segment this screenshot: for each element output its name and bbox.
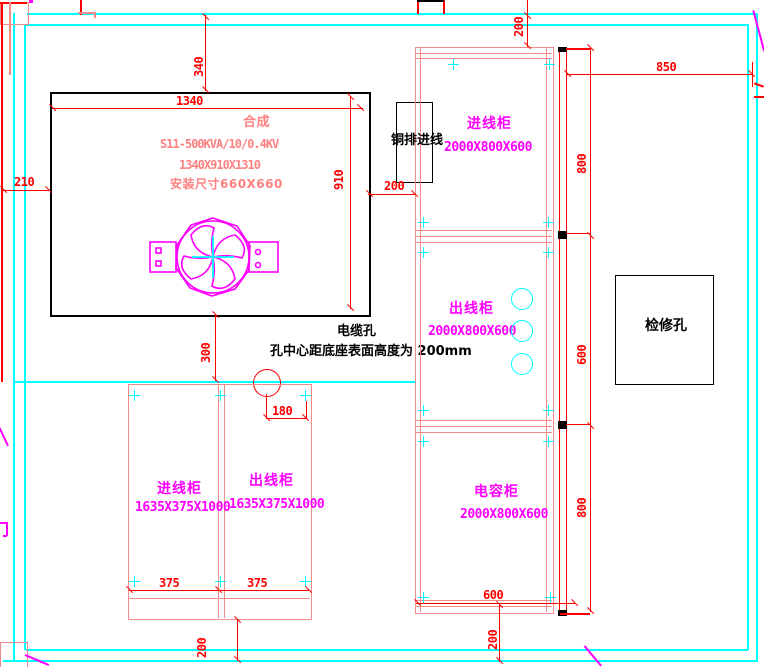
dim-line-200-top	[527, 0, 528, 47]
dim-ext	[566, 424, 590, 425]
transformer-model: S11-500KVA/10/0.4KV	[160, 138, 278, 151]
frame-outer-right	[756, 13, 758, 661]
cabinet-inlet-label: 进线柜	[467, 117, 512, 132]
cable-hole-label: 电缆孔	[337, 325, 376, 339]
frame-inner-left	[24, 24, 26, 650]
dim-600-row2: 600	[576, 345, 589, 365]
dim-line-1340	[52, 108, 363, 109]
transformer-title: 合成	[243, 116, 270, 130]
dim-ext	[560, 613, 590, 615]
dim-line-910	[350, 96, 351, 309]
door-mark-left-v	[6, 522, 8, 536]
cabinet-inlet-size: 2000X800X600	[444, 141, 532, 155]
bottom-cabinet-outlet-label: 出线柜	[249, 474, 294, 489]
cabinet-band	[415, 432, 552, 433]
insertion-cross-marker	[418, 592, 429, 603]
frame-outer-bottom	[3, 660, 758, 662]
insertion-cross-marker	[543, 436, 554, 447]
dim-210: 210	[14, 176, 34, 189]
busbar-label: 铜排进线	[391, 134, 443, 148]
cabinet-column-inner-right	[546, 47, 547, 612]
dim-200-bottom-left: 200	[196, 638, 209, 658]
fan-icon	[146, 213, 282, 301]
insertion-cross-marker	[129, 390, 140, 401]
cabinet-band	[415, 236, 552, 237]
insertion-cross-marker	[545, 592, 556, 603]
edge-line-left-salmon	[9, 2, 11, 75]
dim-300: 300	[200, 343, 213, 363]
insertion-cross-marker	[544, 59, 555, 70]
dim-375-b: 375	[247, 577, 267, 590]
dim-line-340	[205, 15, 206, 91]
insertion-cross-marker	[543, 405, 554, 416]
insertion-cross-marker	[543, 247, 554, 258]
dim-200-top: 200	[513, 17, 526, 37]
cabinet-capacitor-label: 电容柜	[474, 485, 519, 500]
frame-inner-top	[24, 24, 748, 26]
cabinet-band	[415, 58, 552, 59]
cad-drawing-canvas: 合成 S11-500KVA/10/0.4KV 1340X910X1310 安装尺…	[0, 0, 764, 667]
mark-right-edge-b	[754, 96, 764, 98]
door-mark-left-diag	[0, 427, 9, 446]
wall-line-left-red	[1, 2, 3, 382]
insertion-cross-marker	[129, 576, 140, 587]
frame-inner-right	[747, 24, 749, 650]
cabinet-band	[415, 230, 552, 231]
dim-375-a: 375	[159, 577, 179, 590]
cabinet-capacitor-size: 2000X800X600	[460, 508, 548, 522]
dim-line-200-busbar	[368, 194, 415, 195]
wall-notch-top	[417, 0, 444, 2]
dim-line-210	[2, 190, 49, 191]
cabinet-band	[415, 242, 552, 243]
dim-line-600-bottom	[416, 603, 575, 604]
transformer-size: 1340X910X1310	[179, 159, 260, 172]
dim-ext	[566, 48, 590, 50]
dim-line-300	[215, 314, 216, 381]
wall-notch-right	[443, 0, 445, 14]
dim-910: 910	[333, 170, 346, 190]
insertion-cross-marker	[418, 436, 429, 447]
insertion-cross-marker	[418, 217, 429, 228]
transformer-install: 安装尺寸660X660	[170, 177, 283, 191]
vent-circle	[511, 320, 533, 342]
frame-outer-top	[27, 13, 758, 15]
bottom-cabinet-inlet-size: 1635X375X1000	[135, 501, 230, 515]
wall-notch-left	[417, 0, 419, 14]
cabinet-band	[415, 606, 552, 607]
insertion-cross-marker	[543, 217, 554, 228]
insertion-cross-marker	[215, 390, 226, 401]
dim-1340: 1340	[176, 95, 203, 108]
dim-200-bottom-right: 200	[487, 630, 500, 650]
door-swing-topright	[753, 10, 764, 51]
channel-strip-left	[559, 47, 560, 615]
vent-circle	[511, 353, 533, 375]
door-mark-left-bot	[3, 535, 7, 537]
edge-line-top	[0, 2, 27, 4]
inspection-label: 检修孔	[645, 319, 687, 333]
cabinet-column-inner-left	[420, 47, 421, 612]
frame-inner-bottom	[26, 649, 748, 651]
cabinet-band	[415, 53, 552, 54]
cabinet-outlet-size: 2000X800X600	[428, 325, 516, 339]
dim-850: 850	[656, 61, 676, 74]
insertion-cross-marker	[300, 390, 311, 401]
insertion-cross-marker	[418, 247, 429, 258]
dim-800-row1: 800	[576, 154, 589, 174]
dim-line-rows	[590, 47, 591, 612]
cabinet-band	[415, 420, 552, 421]
dim-800-row3: 800	[576, 498, 589, 518]
frame-outer-left	[13, 13, 15, 661]
insertion-cross-marker	[215, 576, 226, 587]
dim-line-200-bl	[237, 619, 238, 661]
bottom-cabinet-outlet-size: 1635X375X1000	[229, 498, 324, 512]
cabinet-band	[415, 426, 552, 427]
insertion-cross-marker	[418, 405, 429, 416]
corner-box-topleft	[0, 2, 29, 25]
dim-600-bottom: 600	[483, 589, 503, 602]
channel-strip-right	[566, 47, 567, 615]
dim-line-850	[566, 74, 753, 75]
dim-340: 340	[193, 57, 206, 77]
bottom-cabinet-base-line	[128, 598, 310, 599]
wall-line	[14, 381, 415, 383]
dim-200-busbar: 200	[384, 180, 404, 193]
hook-top-v	[94, 12, 96, 18]
dot-top	[29, 0, 33, 3]
insertion-cross-marker	[448, 59, 459, 70]
bottom-cabinet-inlet-label: 进线柜	[157, 482, 202, 497]
vent-circle	[511, 288, 533, 310]
cabinet-outlet-label: 出线柜	[449, 302, 494, 317]
